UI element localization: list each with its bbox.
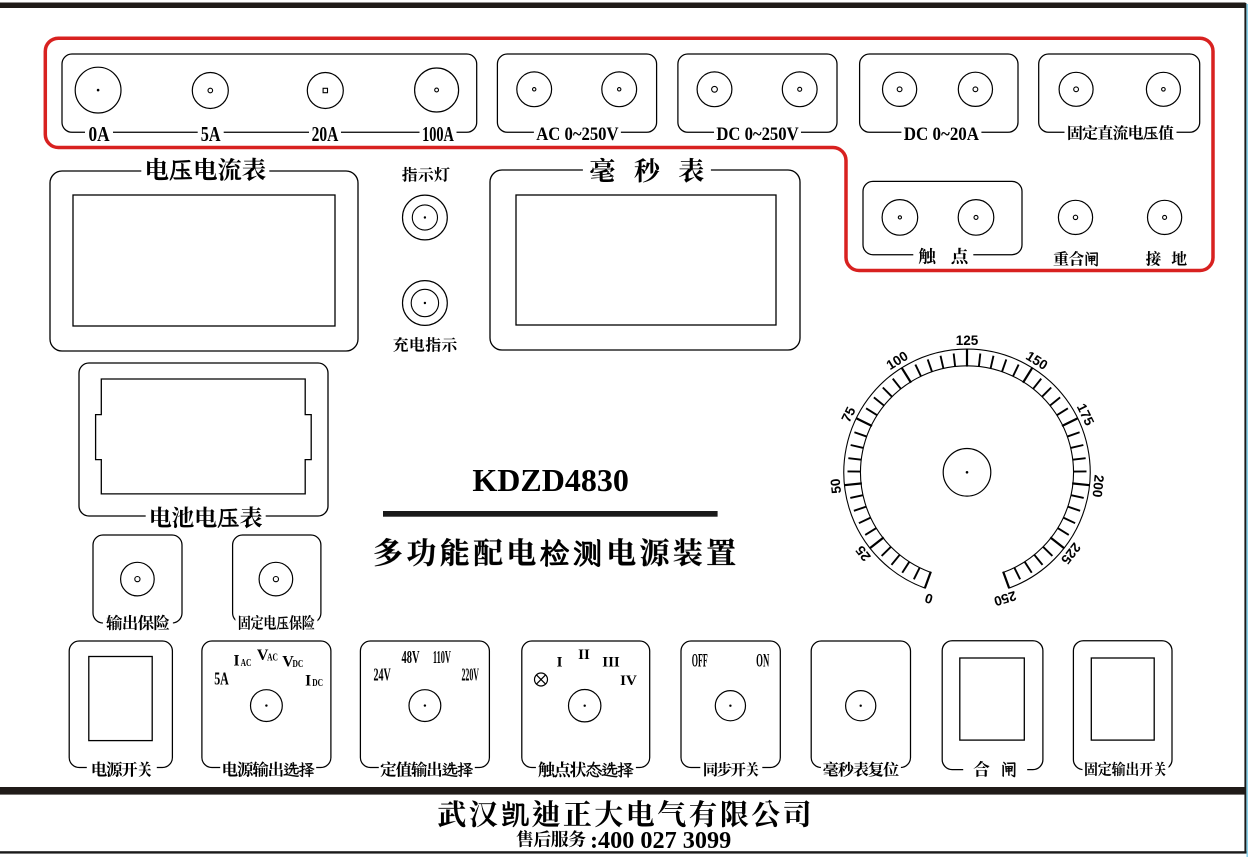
svg-text:I: I bbox=[305, 672, 311, 689]
svg-text:ON: ON bbox=[756, 652, 769, 672]
svg-text:DC 0~20A: DC 0~20A bbox=[904, 124, 980, 145]
svg-text:DC 0~250V: DC 0~250V bbox=[716, 124, 799, 145]
svg-text::400 027 3099: :400 027 3099 bbox=[590, 828, 731, 854]
svg-text:DC: DC bbox=[312, 678, 323, 689]
svg-text:DC: DC bbox=[293, 659, 304, 670]
svg-text:110V: 110V bbox=[433, 647, 451, 667]
svg-text:IV: IV bbox=[620, 673, 637, 689]
svg-text:20A: 20A bbox=[312, 122, 339, 146]
svg-text:I: I bbox=[234, 652, 240, 669]
svg-text:100A: 100A bbox=[422, 122, 454, 146]
svg-text:III: III bbox=[602, 655, 620, 671]
svg-text:50: 50 bbox=[828, 478, 844, 495]
svg-text:AC: AC bbox=[267, 653, 278, 664]
svg-text:KDZD4830: KDZD4830 bbox=[472, 462, 628, 498]
svg-text:5A: 5A bbox=[214, 669, 229, 689]
svg-text:125: 125 bbox=[956, 333, 979, 348]
svg-text:0A: 0A bbox=[88, 122, 110, 146]
svg-text:220V: 220V bbox=[462, 664, 479, 684]
svg-text:200: 200 bbox=[1089, 474, 1106, 498]
svg-text:OFF: OFF bbox=[692, 652, 708, 672]
svg-text:AC: AC bbox=[241, 658, 252, 669]
svg-text:II: II bbox=[578, 647, 590, 663]
svg-text:5A: 5A bbox=[201, 122, 221, 146]
svg-text:AC 0~250V: AC 0~250V bbox=[536, 124, 619, 145]
svg-text:48V: 48V bbox=[402, 647, 420, 667]
svg-text:24V: 24V bbox=[373, 664, 390, 684]
svg-text:I: I bbox=[557, 655, 563, 671]
